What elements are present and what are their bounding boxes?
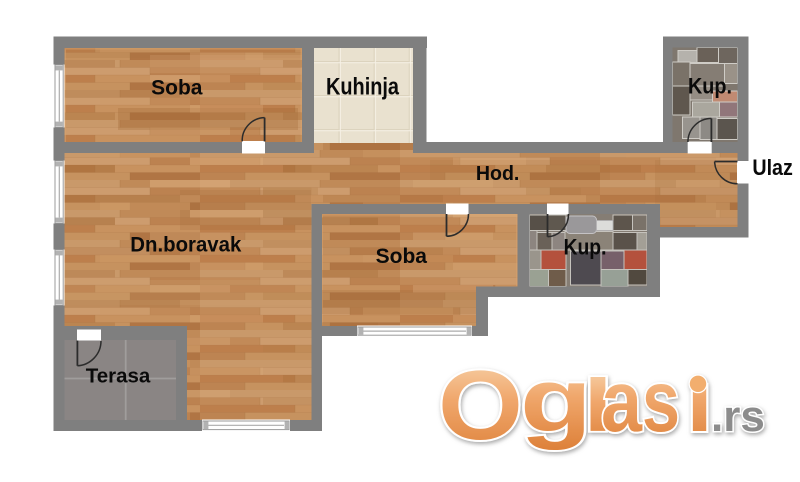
svg-text:Ulaz: Ulaz xyxy=(752,155,793,180)
svg-text:Kup.: Kup. xyxy=(688,74,732,99)
svg-text:a: a xyxy=(601,353,643,450)
svg-text:Kup.: Kup. xyxy=(564,235,607,260)
svg-text:ı: ı xyxy=(686,353,713,450)
svg-text:Soba: Soba xyxy=(376,245,428,268)
svg-text:Kuhinja: Kuhinja xyxy=(326,73,400,100)
svg-text:Terasa: Terasa xyxy=(86,365,151,388)
svg-text:s: s xyxy=(642,353,680,450)
svg-text:O: O xyxy=(438,350,523,460)
svg-text:Hod.: Hod. xyxy=(476,162,520,185)
svg-text:g: g xyxy=(520,351,592,451)
svg-text:.rs: .rs xyxy=(711,392,765,441)
svg-text:Soba: Soba xyxy=(151,77,203,100)
svg-text:Dn.boravak: Dn.boravak xyxy=(130,233,241,256)
